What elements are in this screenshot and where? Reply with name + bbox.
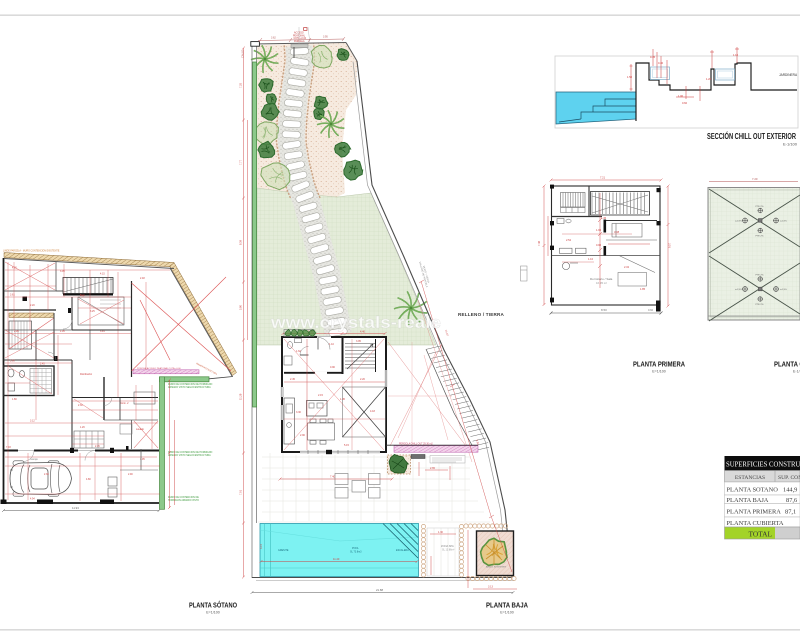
svg-text:0.60: 0.60: [682, 101, 688, 105]
svg-text:3.62: 3.62: [271, 37, 276, 40]
svg-text:i=1,5%: i=1,5%: [735, 220, 742, 222]
svg-text:0.90: 0.90: [596, 243, 602, 247]
svg-text:1.10: 1.10: [329, 343, 334, 346]
svg-text:2.38: 2.38: [44, 473, 49, 476]
svg-text:ARMADO VISTO SEGUN ESTRUCTURA: ARMADO VISTO SEGUN ESTRUCTURA: [168, 386, 211, 389]
svg-text:1.93: 1.93: [596, 228, 602, 232]
svg-text:3.08: 3.08: [614, 230, 620, 234]
svg-text:7.21: 7.21: [600, 176, 606, 180]
svg-text:7.25: 7.25: [239, 82, 243, 88]
svg-text:1.10: 1.10: [588, 257, 594, 261]
svg-text:11.93: 11.93: [72, 506, 79, 510]
svg-text:7.46: 7.46: [537, 240, 541, 246]
svg-text:E=1/100: E=1/100: [652, 370, 666, 374]
svg-text:3.61: 3.61: [10, 294, 15, 297]
svg-text:2.20: 2.20: [360, 378, 365, 381]
svg-text:Lavado: Lavado: [136, 428, 145, 431]
svg-text:3.95: 3.95: [356, 340, 361, 343]
svg-text:3.90: 3.90: [10, 360, 15, 363]
svg-text:PTE 2%: PTE 2%: [756, 236, 764, 238]
svg-text:87,1: 87,1: [785, 508, 796, 515]
svg-text:HORMIGON ARMADO VISTO: HORMIGON ARMADO VISTO: [168, 499, 199, 502]
svg-text:3.25: 3.25: [90, 310, 95, 313]
svg-text:PLANTA BAJA: PLANTA BAJA: [486, 601, 528, 610]
svg-text:7.01: 7.01: [239, 489, 243, 495]
svg-text:MURO DE CONTENCION DE: MURO DE CONTENCION DE: [168, 497, 199, 499]
svg-text:SUP. CONST: SUP. CONST: [778, 475, 800, 481]
svg-text:1.20: 1.20: [706, 77, 712, 81]
svg-text:PLANTA SÓTANO: PLANTA SÓTANO: [189, 601, 237, 610]
svg-text:www.crystals-reale: www.crystals-reale: [270, 314, 441, 332]
svg-text:TOTAL: TOTAL: [749, 529, 773, 538]
svg-text:PTE 2%: PTE 2%: [756, 275, 764, 277]
svg-text:PTE 2%: PTE 2%: [756, 206, 764, 208]
svg-text:1.45: 1.45: [340, 398, 345, 401]
svg-text:2.20: 2.20: [30, 304, 35, 307]
svg-text:1.26: 1.26: [80, 426, 85, 429]
svg-text:3.30: 3.30: [296, 411, 301, 414]
svg-text:4.15: 4.15: [100, 273, 105, 276]
svg-text:1.05: 1.05: [60, 330, 65, 333]
svg-text:3.05: 3.05: [60, 270, 65, 273]
svg-text:2.15: 2.15: [318, 394, 323, 397]
svg-text:1.50: 1.50: [627, 75, 633, 79]
svg-text:8.50: 8.50: [601, 308, 607, 312]
svg-text:E-1/100: E-1/100: [793, 370, 800, 374]
svg-text:7.03: 7.03: [6, 446, 11, 449]
svg-text:1.45: 1.45: [601, 216, 607, 220]
svg-text:GRESITE: GRESITE: [278, 549, 289, 552]
svg-text:PLANTA SOTANO: PLANTA SOTANO: [727, 487, 779, 494]
svg-text:SECCIÓN CHILL OUT EXTERIOR: SECCIÓN CHILL OUT EXTERIOR: [707, 132, 796, 141]
svg-text:i=1,5%: i=1,5%: [780, 289, 787, 291]
svg-text:PLANTA PRIMERA: PLANTA PRIMERA: [633, 360, 685, 369]
svg-text:Distribuidor: Distribuidor: [80, 373, 92, 376]
svg-text:11.28: 11.28: [239, 393, 243, 400]
svg-text:2.65: 2.65: [430, 467, 435, 470]
svg-text:4.18: 4.18: [370, 410, 375, 413]
svg-text:SL 73.8m3: SL 73.8m3: [350, 550, 362, 553]
svg-text:2.95: 2.95: [14, 330, 19, 333]
svg-text:2.48: 2.48: [140, 277, 145, 280]
svg-text:2.15: 2.15: [95, 445, 100, 448]
svg-text:2.45: 2.45: [290, 378, 295, 381]
svg-text:1.10: 1.10: [733, 53, 739, 57]
svg-text:7.20: 7.20: [752, 177, 758, 181]
svg-text:2.90: 2.90: [128, 473, 133, 476]
svg-text:2.32: 2.32: [624, 265, 630, 269]
svg-text:i=1,5%: i=1,5%: [780, 220, 787, 222]
svg-text:4.80: 4.80: [86, 478, 91, 481]
svg-text:PARCELA: PARCELA: [294, 40, 305, 43]
svg-text:RELLENO / TIERRA: RELLENO / TIERRA: [458, 312, 505, 317]
svg-text:0.60: 0.60: [648, 308, 654, 312]
svg-text:87,6: 87,6: [786, 497, 797, 504]
svg-text:Dorm. 2: Dorm. 2: [120, 402, 129, 405]
svg-text:2.52: 2.52: [566, 238, 572, 242]
svg-text:E-1/100: E-1/100: [783, 142, 798, 147]
svg-text:PLANTA CUBIERTA: PLANTA CUBIERTA: [774, 360, 800, 369]
svg-text:LINDE PARCELA - MURO CONTENCIO: LINDE PARCELA - MURO CONTENCION EXISTENT…: [3, 250, 60, 253]
svg-text:ESTANCIAS: ESTANCIAS: [735, 475, 765, 481]
svg-text:3.95: 3.95: [323, 36, 328, 39]
svg-text:1.00: 1.00: [678, 94, 684, 98]
svg-text:11.40: 11.40: [333, 557, 340, 561]
svg-text:SUPERFICIES CONSTRUIDAS: SUPERFICIES CONSTRUIDAS: [726, 460, 800, 469]
svg-text:0.90: 0.90: [330, 366, 335, 369]
svg-text:PLANTA BAJA: PLANTA BAJA: [727, 497, 769, 504]
svg-text:PLANTA CUBIERTA: PLANTA CUBIERTA: [727, 520, 784, 527]
svg-text:2.45: 2.45: [40, 363, 45, 366]
svg-text:SL 13.86m²: SL 13.86m²: [442, 549, 454, 552]
svg-text:1.62: 1.62: [296, 350, 301, 353]
svg-text:i=1,5%: i=1,5%: [735, 289, 742, 291]
svg-text:7.40: 7.40: [330, 476, 335, 479]
svg-text:144,9: 144,9: [783, 487, 797, 494]
svg-text:Bajo: Bajo: [80, 294, 85, 297]
svg-text:PLANTA PRIMERA: PLANTA PRIMERA: [727, 508, 782, 515]
svg-text:3.13: 3.13: [488, 586, 493, 589]
svg-text:8.39: 8.39: [239, 239, 243, 245]
svg-text:ESCALERA: ESCALERA: [396, 549, 409, 552]
svg-text:E=1/100: E=1/100: [206, 611, 220, 615]
svg-text:5.80: 5.80: [239, 304, 243, 310]
svg-text:21.88: 21.88: [376, 588, 383, 592]
svg-text:1.80: 1.80: [12, 398, 17, 401]
svg-text:5.15: 5.15: [344, 444, 349, 447]
svg-text:3.12: 3.12: [30, 420, 35, 423]
svg-text:ZONA SPA: ZONA SPA: [441, 544, 454, 548]
svg-text:1.85: 1.85: [640, 287, 646, 291]
svg-text:PEATONAL: PEATONAL: [293, 34, 306, 37]
svg-text:CALLE: CALLE: [241, 50, 245, 58]
svg-text:PTE 2%: PTE 2%: [756, 304, 764, 306]
svg-text:2.90: 2.90: [300, 434, 305, 437]
svg-text:3.73: 3.73: [260, 544, 263, 549]
svg-text:E=1/100: E=1/100: [500, 611, 514, 615]
svg-text:4.30: 4.30: [12, 267, 17, 270]
svg-text:9.57: 9.57: [668, 242, 672, 248]
svg-text:1.30: 1.30: [438, 531, 443, 534]
svg-text:4.94: 4.94: [30, 498, 35, 501]
svg-text:PORCHE ACCESO PEATONAL COTA +0: PORCHE ACCESO PEATONAL COTA +0.00: [137, 367, 181, 370]
svg-text:16.95 m²: 16.95 m²: [596, 281, 607, 285]
svg-text:7.77: 7.77: [239, 159, 243, 165]
svg-text:MURO DE CONTENCION DE HORMIGON: MURO DE CONTENCION DE HORMIGON: [168, 384, 213, 386]
svg-text:0.45: 0.45: [650, 55, 656, 59]
svg-text:ARBOL EXISTENTE: ARBOL EXISTENTE: [486, 566, 507, 569]
svg-text:0.40: 0.40: [658, 61, 664, 65]
svg-text:PERGOLA CHILL OUT 29.30 m2: PERGOLA CHILL OUT 29.30 m2: [399, 443, 433, 446]
svg-text:JARDINERA: JARDINERA: [779, 73, 798, 77]
